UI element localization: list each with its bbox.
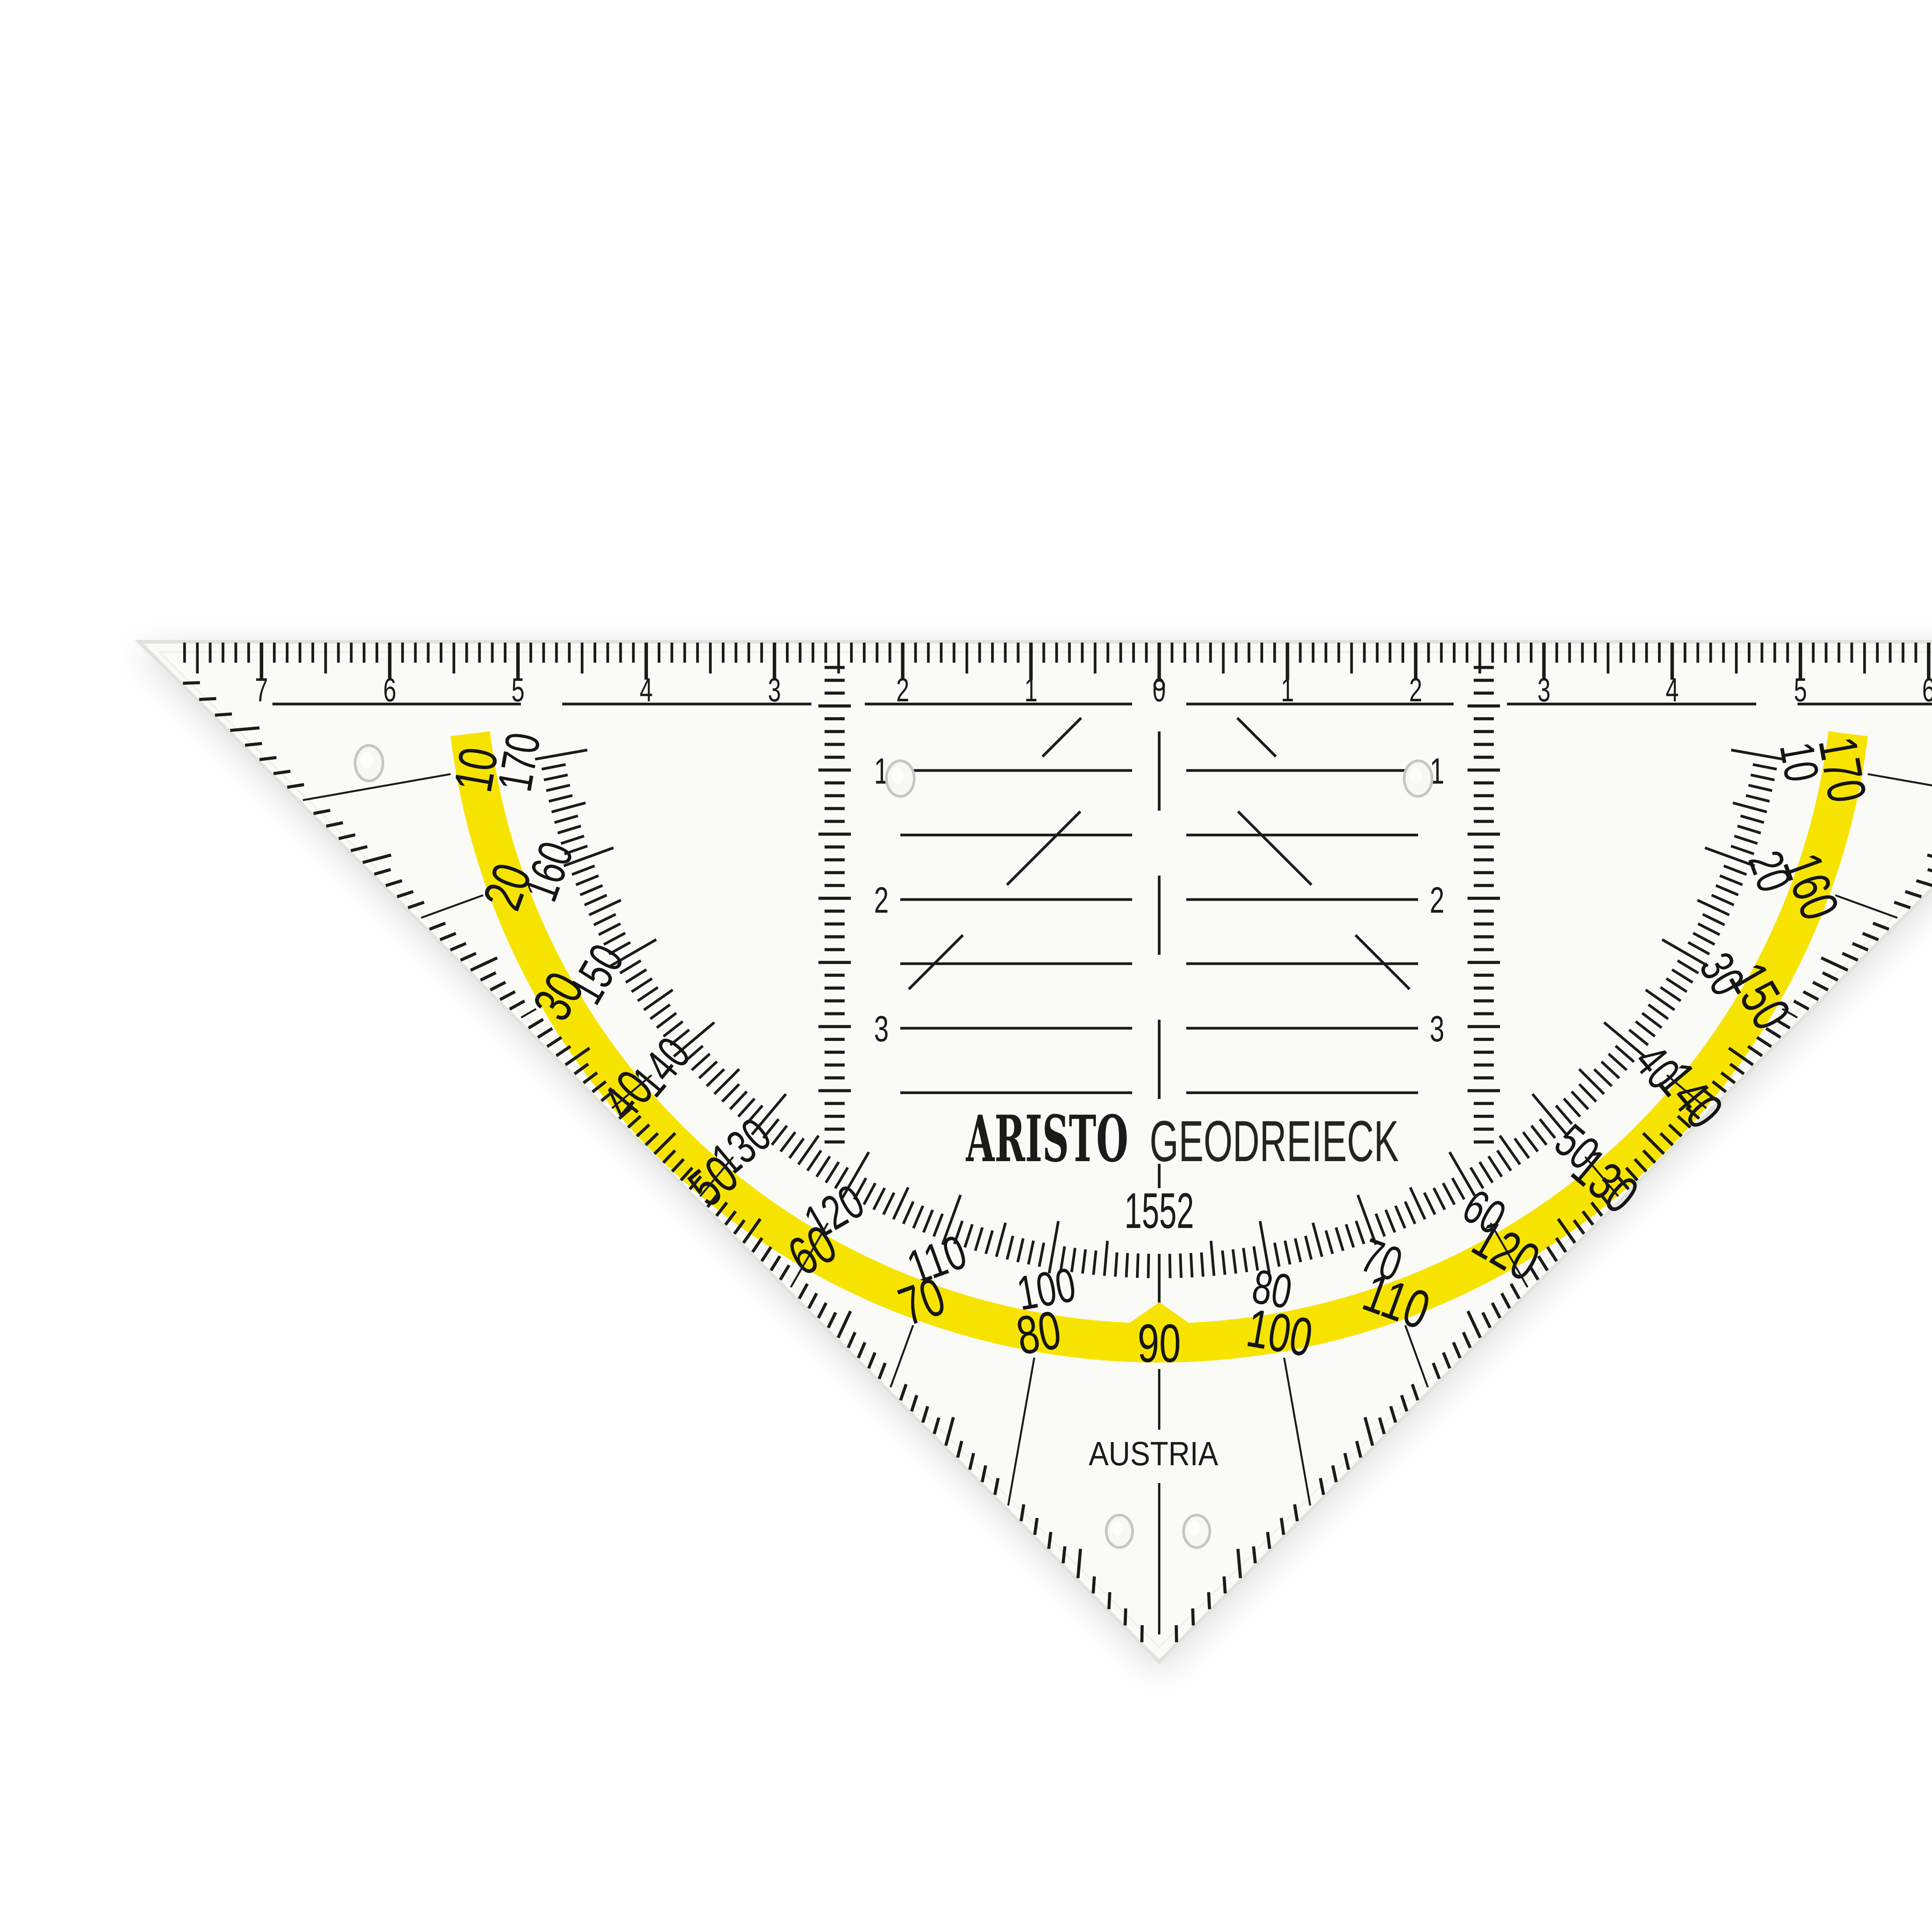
country-text: AUSTRIA bbox=[1089, 1435, 1218, 1473]
edge-degree-hatch bbox=[215, 714, 232, 715]
edge-degree-hatch bbox=[260, 758, 277, 760]
parallel-label-right: 2 bbox=[1430, 880, 1444, 921]
protractor-degree-tick bbox=[1148, 1254, 1149, 1278]
rivet-hole-highlight bbox=[1111, 1521, 1123, 1536]
protractor-degree-tick bbox=[1115, 1252, 1117, 1277]
edge-degree-hatch bbox=[1176, 1625, 1177, 1642]
parallel-label-right: 3 bbox=[1430, 1009, 1444, 1049]
model-text: 1552 bbox=[1124, 1182, 1194, 1239]
protractor-degree-tick bbox=[1201, 1252, 1203, 1277]
protractor-degree-tick bbox=[1191, 1253, 1192, 1277]
protractor-degree-tick bbox=[1170, 1254, 1170, 1278]
edge-degree-hatch bbox=[1142, 1625, 1142, 1642]
edge-degree-hatch bbox=[1268, 1532, 1270, 1549]
cm-number: 7 bbox=[255, 672, 268, 709]
edge-degree-hatch bbox=[1209, 1592, 1209, 1609]
edge-degree-hatch bbox=[199, 699, 216, 699]
degree-label-band: 100 bbox=[1243, 1297, 1317, 1368]
series-text: GEODREIECK bbox=[1150, 1109, 1399, 1173]
edge-degree-hatch bbox=[183, 683, 200, 684]
edge-degree-hatch bbox=[1063, 1546, 1065, 1563]
edge-degree-hatch bbox=[245, 743, 262, 745]
edge-degree-hatch bbox=[1253, 1546, 1255, 1563]
rivet-hole-highlight bbox=[1189, 1521, 1201, 1536]
edge-degree-hatch bbox=[1224, 1577, 1225, 1594]
edge-degree-hatch bbox=[1125, 1609, 1126, 1626]
degree-label-band: 170 bbox=[1807, 733, 1878, 807]
rivet-hole-highlight bbox=[892, 767, 904, 783]
cm-number: 0 bbox=[1153, 672, 1166, 709]
edge-degree-hatch bbox=[1109, 1592, 1110, 1609]
edge-degree-hatch bbox=[1193, 1609, 1194, 1626]
edge-degree-hatch bbox=[1093, 1577, 1094, 1594]
parallel-label-left: 3 bbox=[874, 1009, 889, 1049]
protractor-degree-tick bbox=[1180, 1253, 1181, 1278]
brand-text: ARISTO bbox=[966, 1101, 1128, 1176]
rivet-hole-highlight bbox=[1410, 767, 1422, 783]
protractor-degree-tick bbox=[1137, 1253, 1138, 1278]
edge-degree-hatch bbox=[1049, 1532, 1051, 1549]
degree-label-band: 90 bbox=[1138, 1313, 1181, 1374]
protractor-degree-tick bbox=[1126, 1253, 1128, 1277]
product-photo-geodreieck: 765432101234567 123123 17016015014013012… bbox=[0, 0, 1932, 1932]
parallel-label-left: 2 bbox=[874, 880, 889, 921]
rivet-hole-highlight bbox=[361, 752, 373, 768]
